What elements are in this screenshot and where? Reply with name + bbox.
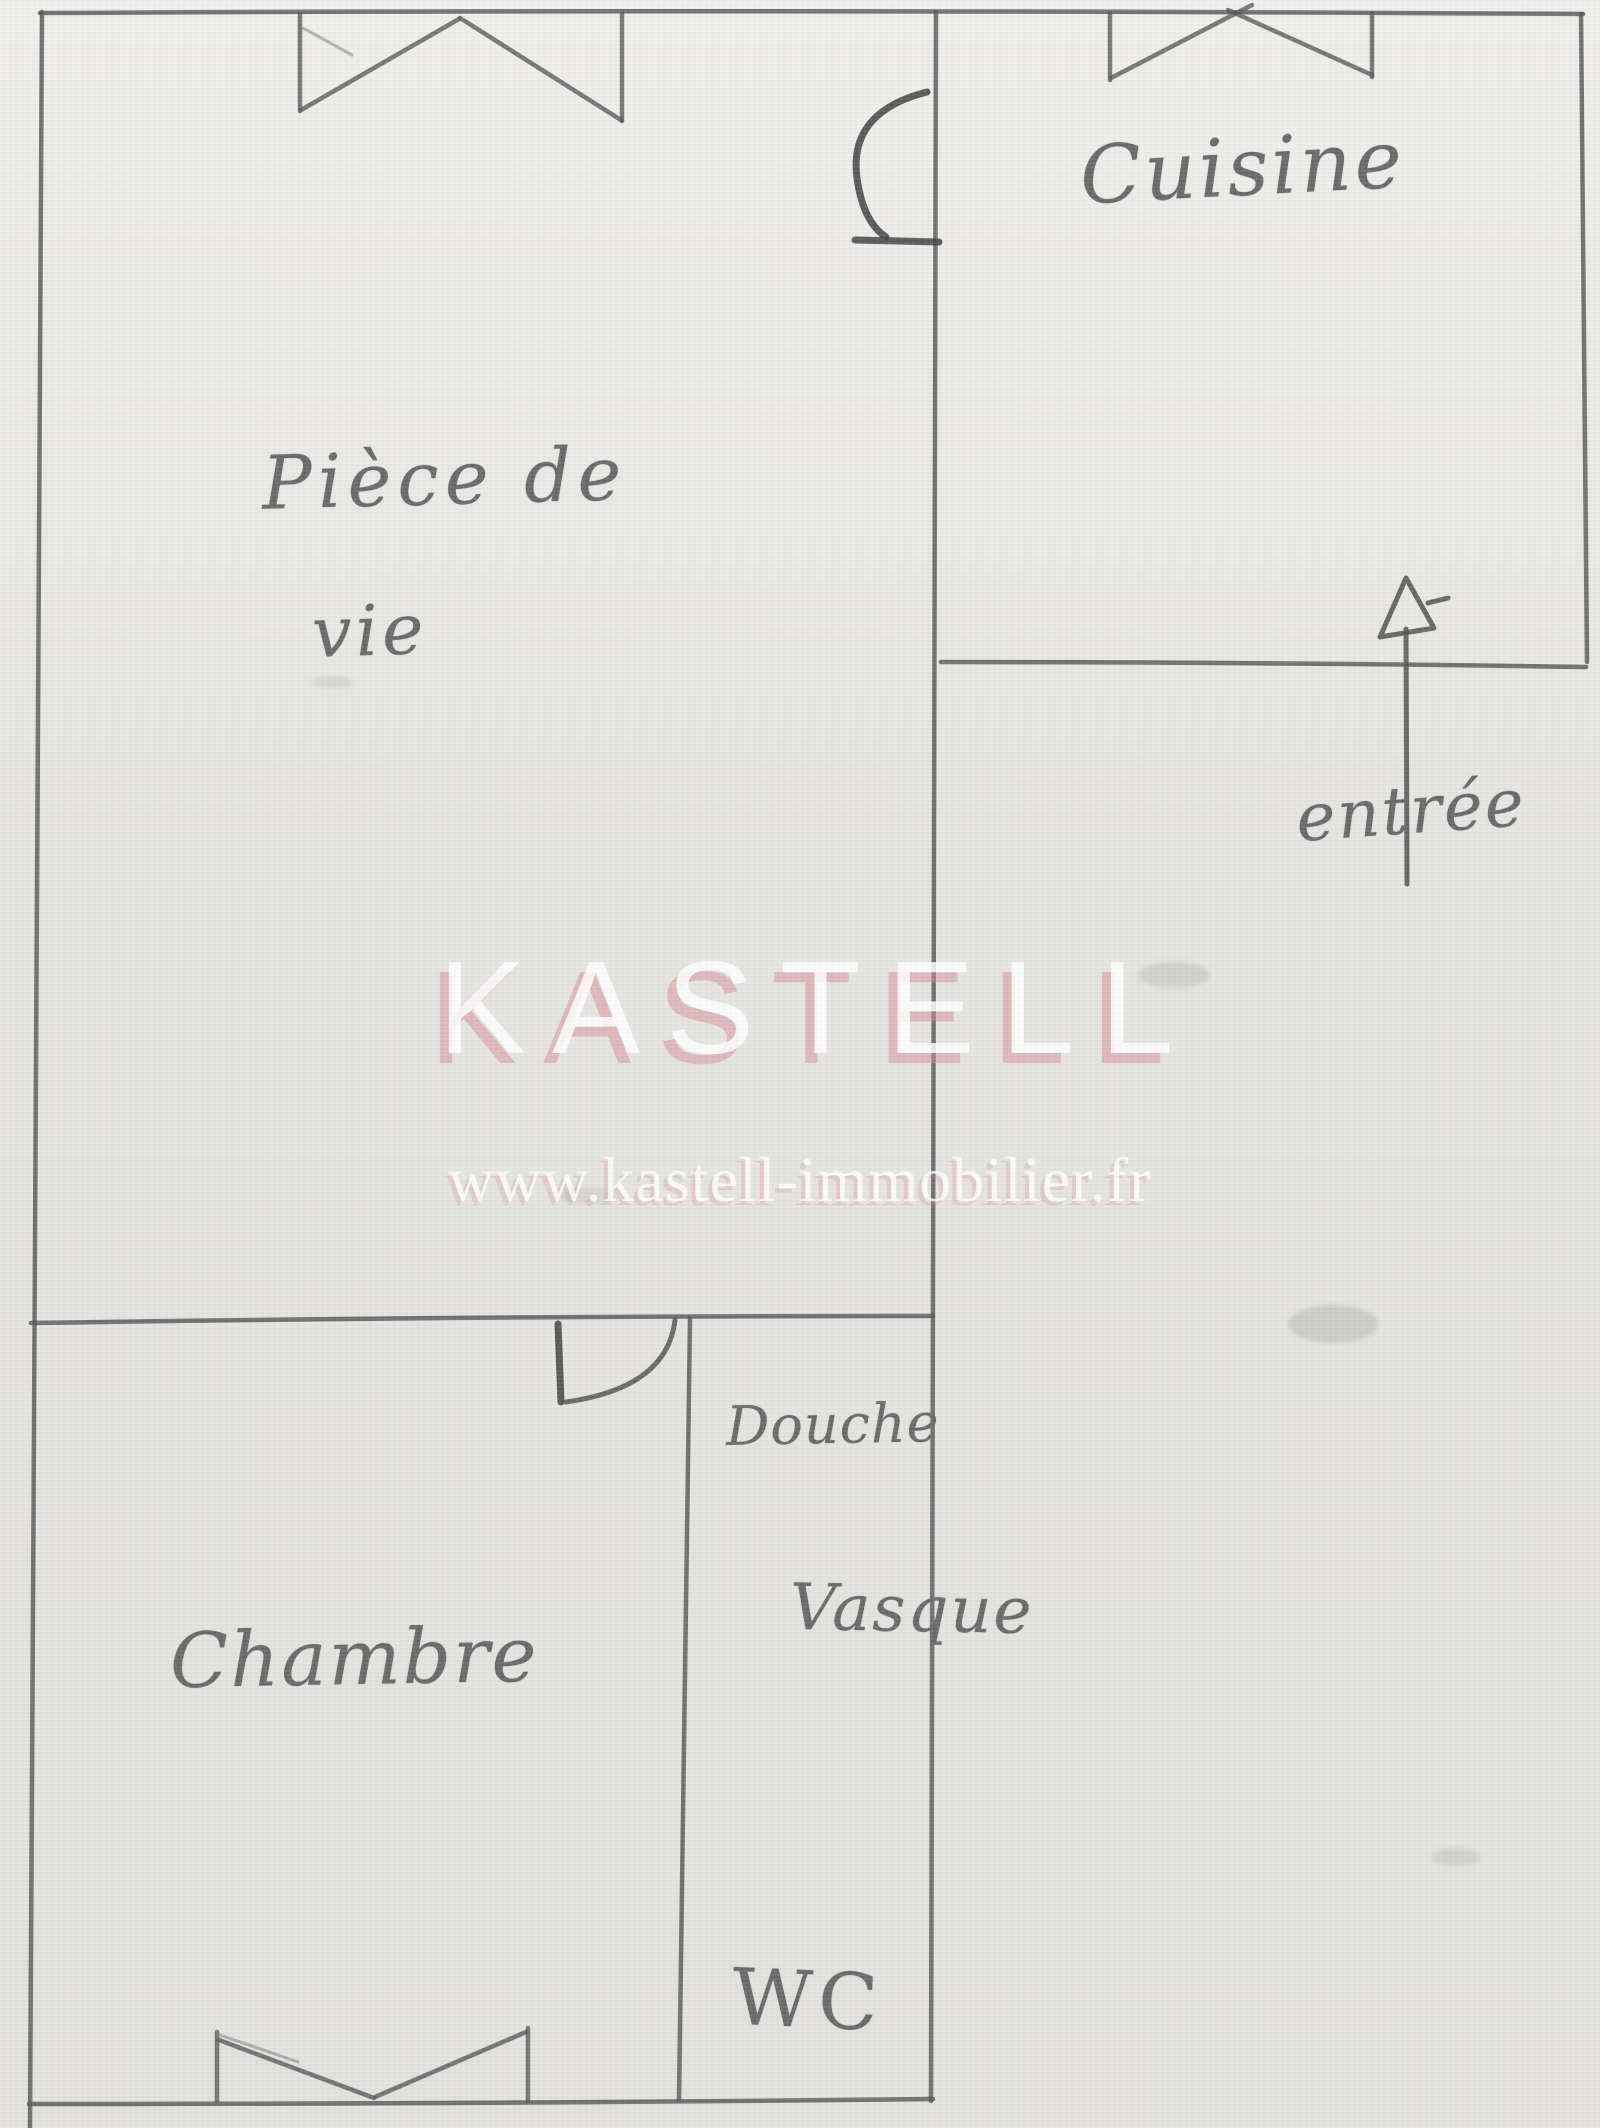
wall-middle-horizontal (31, 1316, 933, 1323)
room-label-basin: Vasque (789, 1576, 1033, 1644)
scanned-floor-plan: KASTELL www.kastell-immobilier.fr Pièce … (0, 0, 1600, 2128)
watermark-brand: KASTELL (438, 942, 1198, 1074)
wall-top (40, 11, 1583, 14)
room-label-living-line2: vie (311, 594, 429, 668)
wall-kitchen-right (1581, 14, 1587, 662)
room-label-shower: Douche (726, 1396, 940, 1454)
window-icon-living-top (300, 14, 622, 121)
watermark-url: www.kastell-immobilier.fr (448, 1148, 1208, 1212)
door-arc-icon-kitchen (855, 92, 939, 242)
room-label-living-line1: Pièce de (261, 437, 628, 521)
pencil-smudge (1288, 1305, 1378, 1343)
entrance-label: entrée (1294, 770, 1528, 852)
wall-kitchen-bottom (941, 662, 1586, 667)
wall-bathroom-separator (679, 1319, 690, 2100)
window-icon-bedroom-bottom (217, 2028, 528, 2101)
room-label-toilet: WC (730, 1959, 885, 2044)
room-label-kitchen: Cuisine (1078, 120, 1407, 217)
pencil-smudge (312, 676, 352, 688)
wall-left (30, 12, 42, 2128)
door-arc-icon-bathroom (558, 1320, 675, 1402)
wall-bottom (29, 2099, 933, 2104)
pencil-smudge (1432, 1848, 1480, 1866)
window-icon-kitchen-top (1110, 5, 1372, 80)
room-label-bedroom: Chambre (169, 1617, 539, 1699)
